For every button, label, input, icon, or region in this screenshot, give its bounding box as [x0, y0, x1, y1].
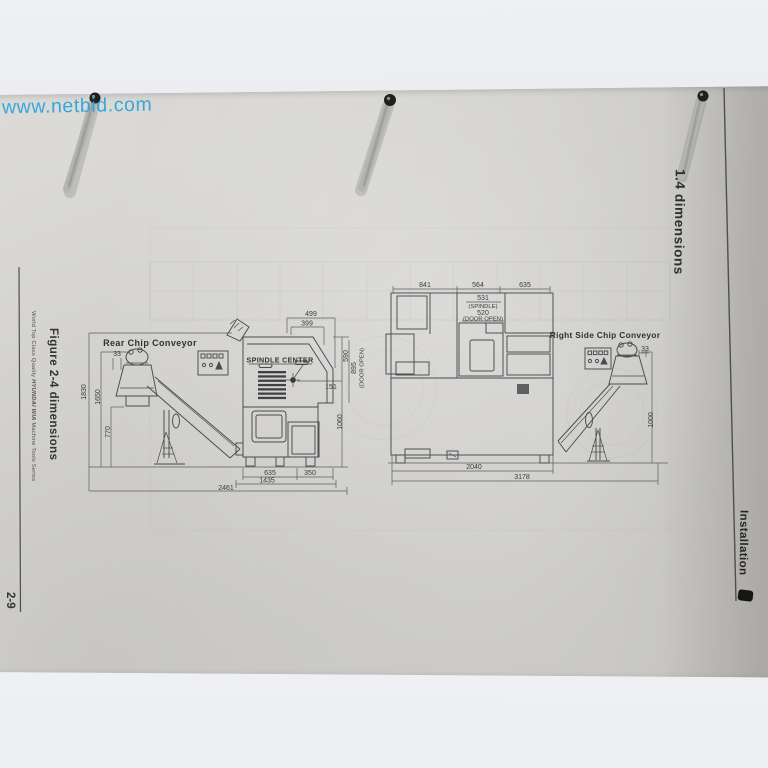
sidebar-brand: HYUNDAI WIA	[30, 379, 36, 421]
chapter-thumb-tab-icon	[737, 589, 753, 602]
front-view-dimension-labels: 33 1830 1650 770 499 399 590 895 (DOOR O…	[81, 311, 366, 492]
dim-1060: 1060	[337, 414, 344, 430]
dim-564: 564	[472, 282, 484, 289]
dim-635-front: 635	[264, 470, 276, 477]
dim-door-open-label-front: (DOOR OPEN)	[360, 348, 366, 388]
dim-2461: 2461	[218, 485, 234, 492]
dim-33-front: 33	[113, 351, 121, 358]
dim-33-side: 33	[641, 346, 649, 353]
front-view-grille	[258, 371, 286, 399]
dim-499: 499	[305, 311, 317, 318]
page-number: 2-9	[4, 592, 16, 609]
dim-635-side: 635	[519, 282, 531, 289]
dim-531: 531	[477, 295, 489, 302]
section-header: 1.4 dimensions	[671, 169, 687, 275]
dim-3178: 3178	[514, 474, 530, 481]
dim-350: 350	[304, 470, 316, 477]
dim-door-open-label-side: (DOOR OPEN)	[463, 317, 503, 323]
header-rule	[724, 88, 736, 601]
dim-1435: 1435	[259, 478, 275, 485]
dim-895: 895	[351, 362, 358, 374]
figure-caption: Figure 2-4 dimensions	[47, 328, 59, 461]
dim-399: 399	[301, 321, 313, 328]
front-view-title: Rear Chip Conveyor	[103, 338, 197, 348]
dim-1830: 1830	[81, 384, 88, 400]
manual-page-photo: 33 1830 1650 770 499 399 590 895 (DOOR O…	[0, 0, 768, 768]
footer-rule	[19, 267, 21, 612]
show-through-table	[150, 262, 670, 320]
netbid-watermark: www.netbid.com	[2, 94, 153, 120]
front-view-conveyor-outline	[116, 348, 240, 464]
sidebar-slogan: World Top Class Quality HYUNDAI WIA Mach…	[30, 311, 36, 481]
dim-590: 590	[343, 350, 350, 362]
dim-770: 770	[105, 426, 112, 438]
photo-pins	[67, 91, 709, 193]
sidebar-suffix: Machine Tools Series	[30, 421, 36, 482]
dim-1650: 1650	[95, 389, 102, 405]
dim-151: 151	[325, 384, 337, 391]
pin-icon	[698, 91, 709, 102]
spindle-center-label: SPINDLE CENTER	[247, 356, 314, 365]
pin-icon	[384, 94, 396, 106]
dim-2040: 2040	[466, 464, 482, 471]
side-view-title: Right Side Chip Conveyor	[550, 330, 661, 340]
chapter-tab-label: Installation	[737, 510, 750, 576]
dim-841: 841	[419, 282, 431, 289]
dim-1000: 1000	[648, 412, 655, 428]
sidebar-prefix: World Top Class Quality	[30, 311, 36, 379]
